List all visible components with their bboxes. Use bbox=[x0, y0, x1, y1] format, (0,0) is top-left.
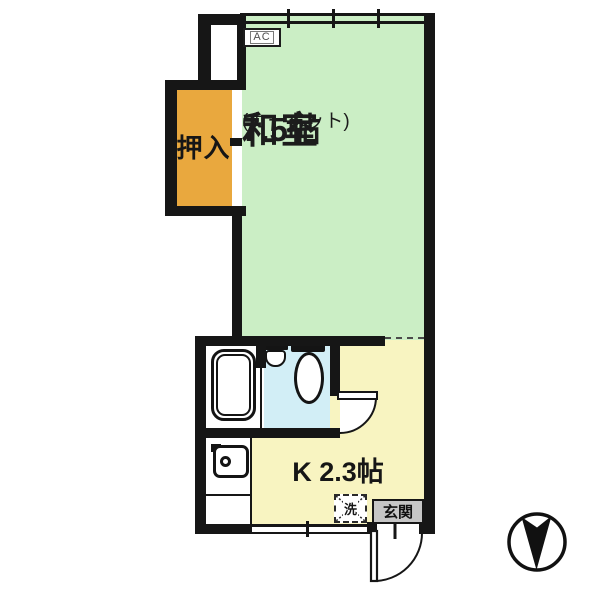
doors-and-compass-overlay bbox=[0, 0, 600, 600]
floor-plan: AC 和室 (カーペット) 7.5帖 押入 K 2.3帖 洗 玄関 bbox=[0, 0, 600, 600]
north-arrow-icon bbox=[509, 514, 565, 570]
entrance-door-icon bbox=[371, 524, 422, 581]
bathroom-door-icon bbox=[338, 392, 377, 433]
